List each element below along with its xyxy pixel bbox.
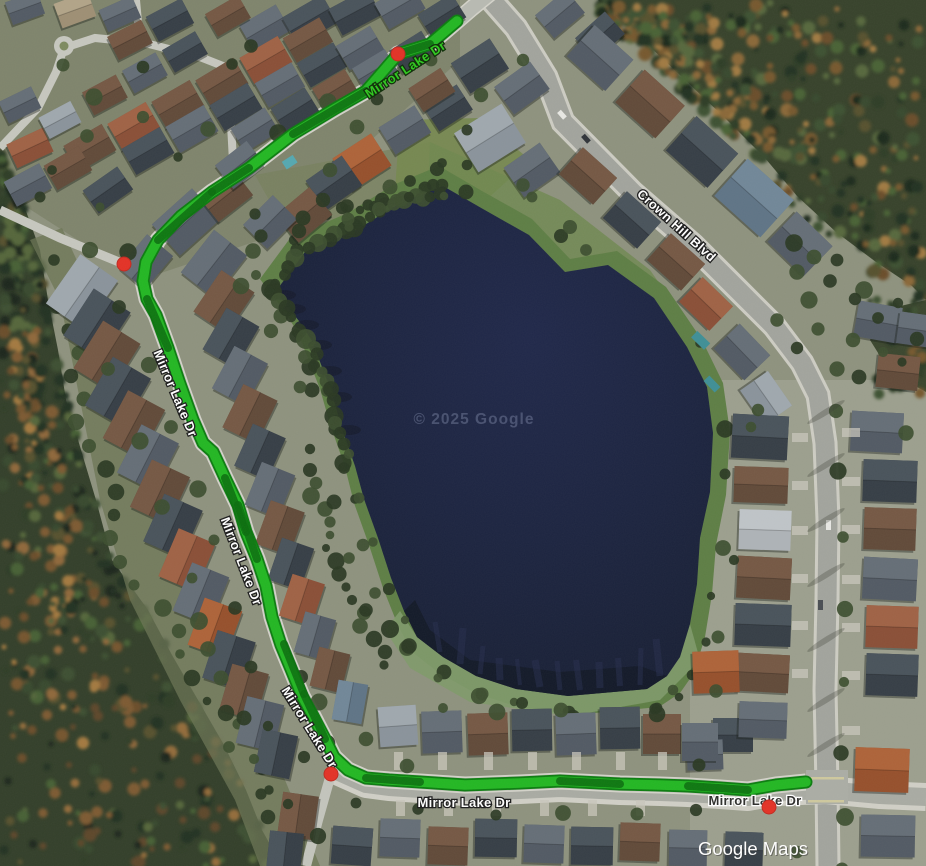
svg-text:Mirror Lake Dr: Mirror Lake Dr [417, 795, 510, 810]
svg-text:© 2025 Google: © 2025 Google [414, 411, 535, 428]
svg-text:Mirror Lake Dr: Mirror Lake Dr [708, 793, 801, 808]
svg-text:Google Maps: Google Maps [698, 838, 808, 859]
